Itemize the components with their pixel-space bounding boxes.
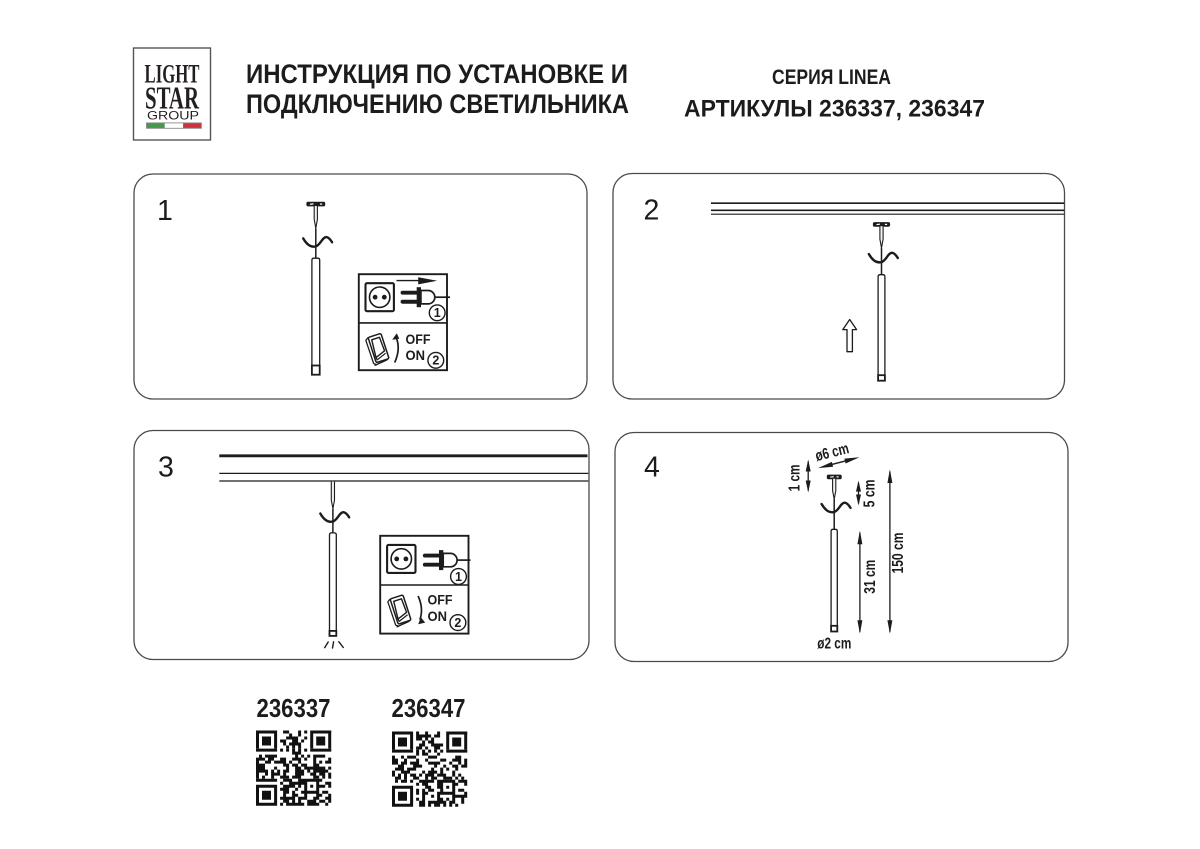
svg-text:ON: ON [428, 609, 448, 624]
svg-text:ø2 cm: ø2 cm [817, 636, 851, 653]
svg-text:31 cm: 31 cm [862, 560, 879, 594]
svg-text:150 cm: 150 cm [890, 533, 907, 574]
svg-text:1: 1 [157, 195, 173, 227]
svg-text:OFF: OFF [428, 593, 453, 608]
svg-text:1: 1 [455, 570, 462, 584]
svg-text:ПОДКЛЮЧЕНИЮ СВЕТИЛЬНИКА: ПОДКЛЮЧЕНИЮ СВЕТИЛЬНИКА [246, 89, 629, 119]
svg-text:СЕРИЯ LINEA: СЕРИЯ LINEA [772, 66, 891, 89]
svg-text:ИНСТРУКЦИЯ ПО УСТАНОВКЕ И: ИНСТРУКЦИЯ ПО УСТАНОВКЕ И [246, 59, 628, 89]
svg-text:236337: 236337 [257, 695, 331, 723]
svg-text:236347: 236347 [392, 695, 466, 723]
svg-text:ON: ON [406, 348, 426, 363]
svg-text:GROUP: GROUP [147, 109, 199, 123]
svg-text:2: 2 [644, 195, 660, 227]
svg-text:5 cm: 5 cm [861, 479, 878, 507]
svg-text:1 cm: 1 cm [787, 464, 804, 491]
svg-text:2: 2 [432, 354, 439, 368]
svg-text:3: 3 [158, 452, 174, 484]
svg-text:OFF: OFF [406, 332, 431, 347]
svg-text:4: 4 [644, 452, 660, 484]
svg-text:АРТИКУЛЫ 236337, 236347: АРТИКУЛЫ 236337, 236347 [684, 96, 985, 123]
svg-text:2: 2 [454, 616, 461, 630]
svg-text:1: 1 [434, 306, 441, 320]
